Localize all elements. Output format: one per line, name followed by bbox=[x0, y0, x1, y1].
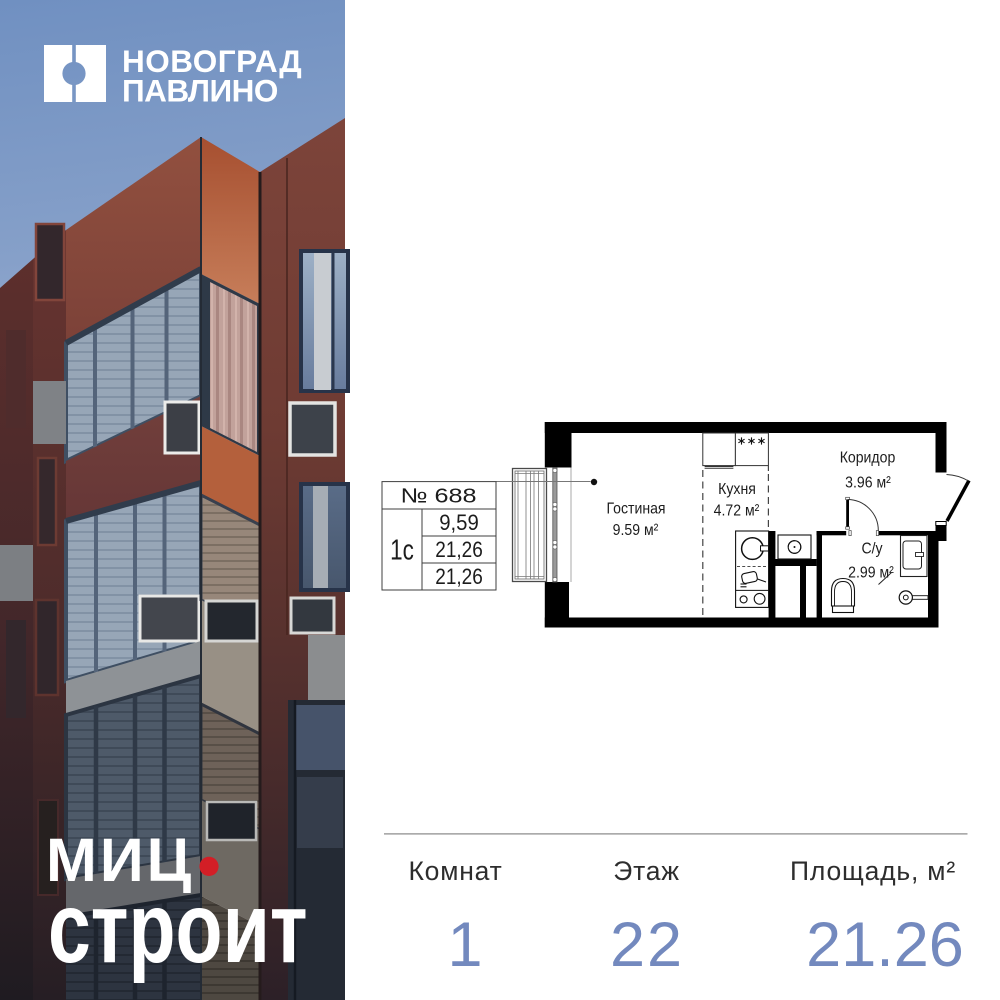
svg-text:строит: строит bbox=[48, 871, 308, 983]
svg-text:Комнат: Комнат bbox=[408, 856, 502, 886]
svg-text:2.99 м²: 2.99 м² bbox=[848, 564, 894, 582]
svg-text:ПАВЛИНО: ПАВЛИНО bbox=[122, 73, 278, 109]
svg-text:Площадь, м²: Площадь, м² bbox=[790, 856, 956, 886]
svg-text:Гостиная: Гостиная bbox=[606, 500, 665, 518]
svg-text:1: 1 bbox=[447, 910, 482, 980]
svg-text:21,26: 21,26 bbox=[435, 538, 482, 563]
svg-text:Кухня: Кухня bbox=[718, 480, 756, 498]
svg-text:4.72 м²: 4.72 м² bbox=[714, 502, 760, 520]
svg-text:№ 688: № 688 bbox=[400, 484, 476, 507]
svg-text:3.96 м²: 3.96 м² bbox=[845, 474, 891, 492]
svg-text:Коридор: Коридор bbox=[840, 449, 896, 467]
svg-text:Этаж: Этаж bbox=[613, 856, 680, 886]
svg-text:С/у: С/у bbox=[861, 540, 883, 558]
svg-text:1с: 1с bbox=[390, 535, 414, 566]
svg-text:9.59 м²: 9.59 м² bbox=[613, 521, 659, 539]
svg-text:21,26: 21,26 bbox=[435, 565, 482, 590]
svg-text:22: 22 bbox=[610, 910, 684, 980]
svg-text:21.26: 21.26 bbox=[806, 910, 964, 980]
svg-text:9,59: 9,59 bbox=[439, 510, 479, 535]
